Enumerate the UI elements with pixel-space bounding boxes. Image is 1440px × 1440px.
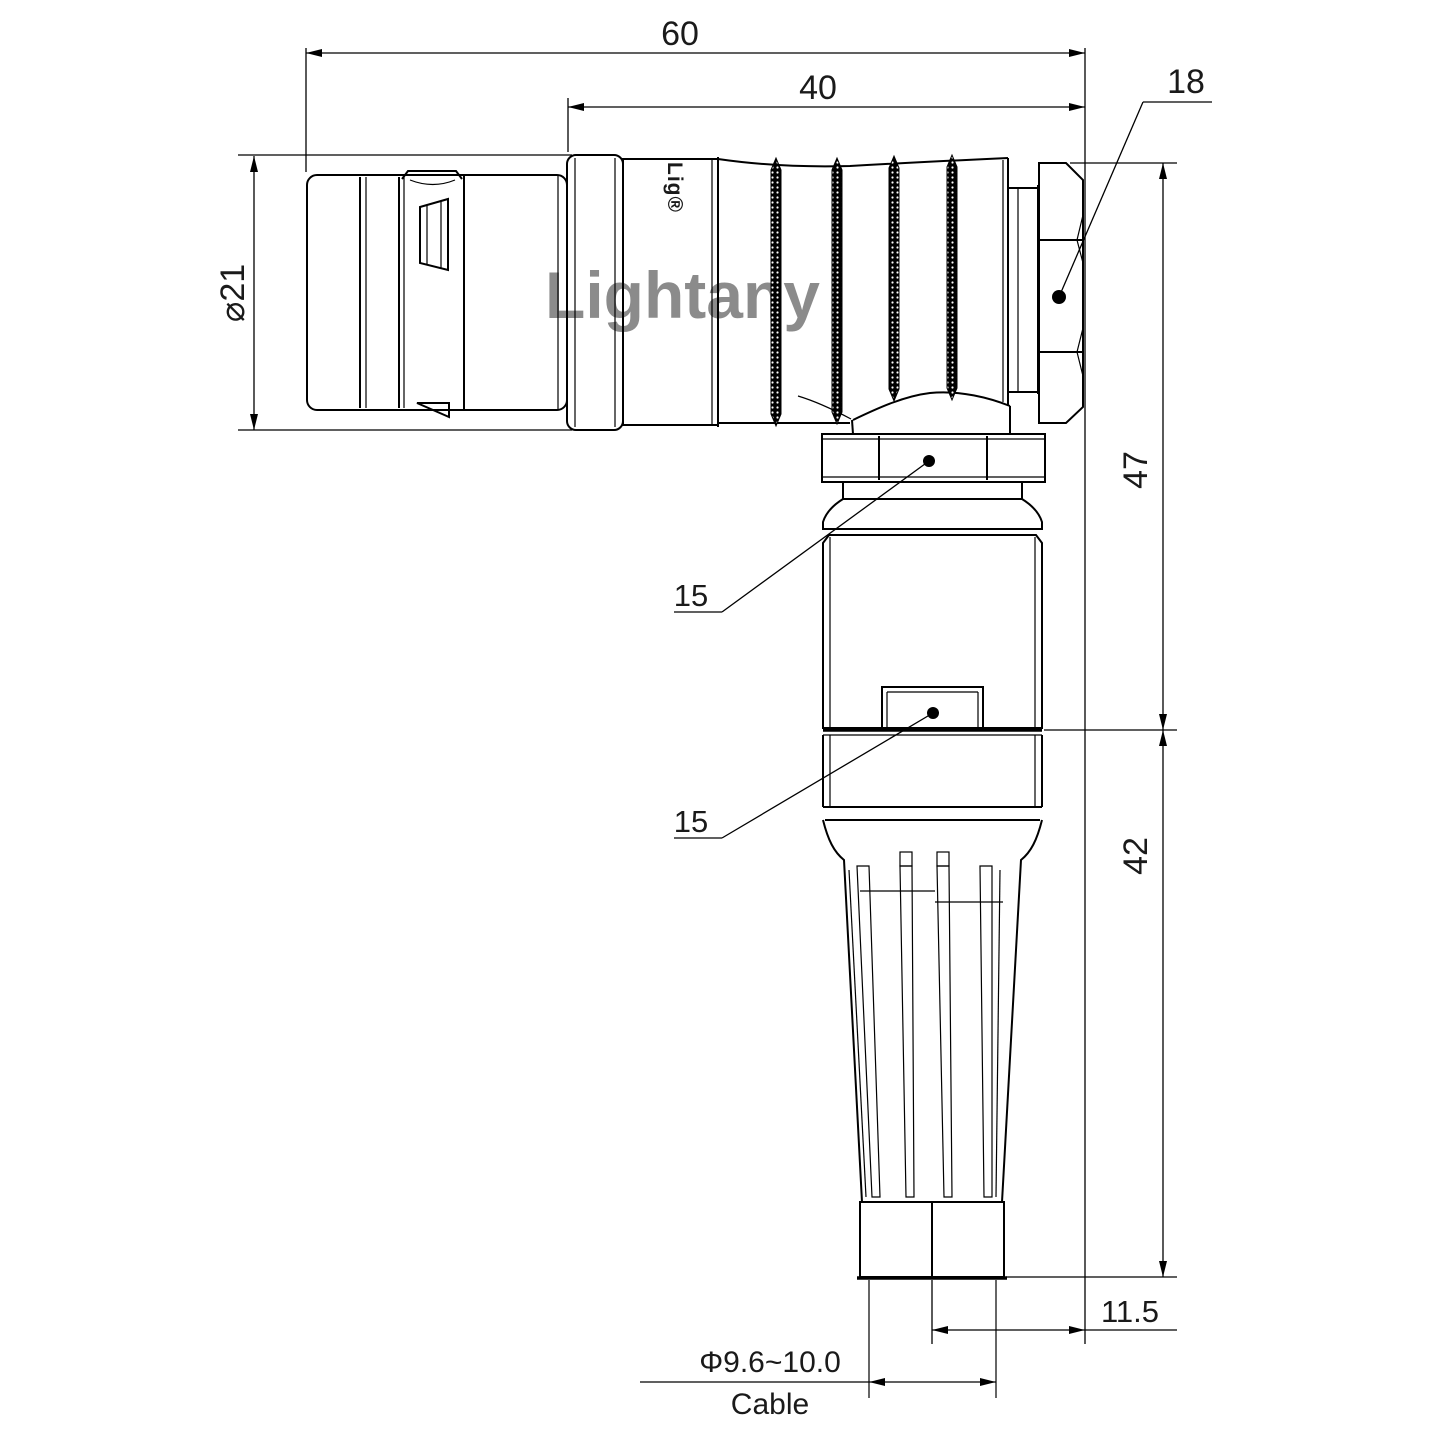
svg-text:15: 15 [674,578,708,613]
keyway-window [420,199,448,270]
dimension-shell-diameter: ⌀21 [214,155,572,430]
connector-body: Lig® [307,155,1083,1398]
svg-text:11.5: 11.5 [1101,1294,1159,1329]
cable-label: Cable [731,1388,809,1421]
svg-text:Φ9.6~10.0: Φ9.6~10.0 [699,1346,841,1379]
leader-dot-18 [1052,290,1066,304]
technical-drawing-page: Lightany [0,0,1440,1440]
label-hex-nut-size: 18 [1052,63,1212,304]
part-housing-upper [823,535,1042,735]
leader-dot-15-upper [923,455,935,467]
brand-logo-text: Lig® [663,162,686,213]
leader-dot-15-lower [927,707,939,719]
part-strain-relief [823,820,1042,1202]
dimension-cable-diameter: Φ9.6~10.0 Cable [640,1346,996,1421]
part-bell [823,482,1042,529]
dimension-overall-length: 60 [306,15,1085,1344]
svg-text:18: 18 [1167,63,1205,101]
svg-text:60: 60 [661,15,699,53]
svg-text:15: 15 [674,804,708,839]
part-housing-lower [823,735,1042,820]
dimension-lower-height: 42 [1117,837,1155,875]
part-end-collar [857,1202,1007,1278]
svg-text:⌀21: ⌀21 [214,264,252,322]
part-neck [1008,185,1039,394]
dimension-rear-body-length: 40 [568,69,1085,152]
dimension-upper-height: 47 [1117,451,1155,489]
connector-drawing: Lightany [0,0,1440,1440]
dimension-right-offset: 11.5 [932,1280,1177,1344]
svg-text:40: 40 [799,69,837,107]
dimension-heights: 47 42 [1006,163,1177,1277]
part-rear-shell [307,171,567,417]
